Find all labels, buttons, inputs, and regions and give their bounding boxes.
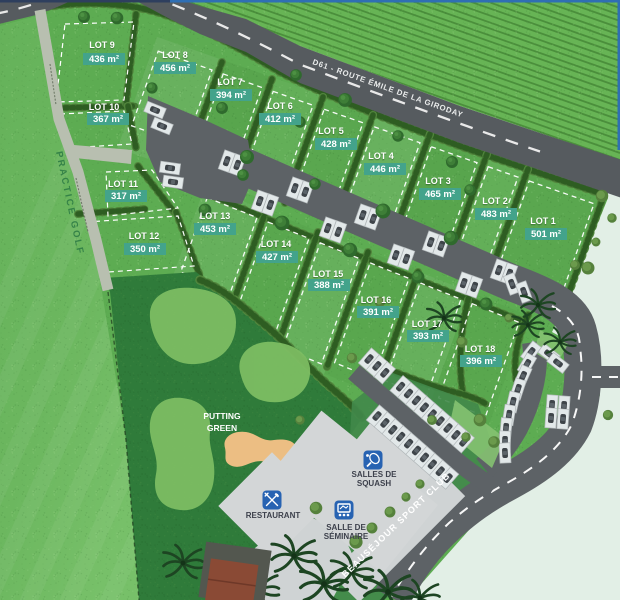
svg-text:SÉMINAIRE: SÉMINAIRE (324, 532, 369, 541)
svg-text:LOT 18: LOT 18 (465, 344, 496, 354)
svg-text:LOT 16: LOT 16 (361, 295, 392, 305)
svg-text:LOT 3: LOT 3 (425, 176, 451, 186)
svg-text:394 m²: 394 m² (216, 90, 246, 101)
svg-text:LOT 9: LOT 9 (89, 40, 115, 50)
svg-text:456 m²: 456 m² (160, 63, 190, 74)
svg-text:SALLE DE: SALLE DE (326, 523, 366, 532)
svg-text:465 m²: 465 m² (425, 189, 455, 200)
svg-text:388 m²: 388 m² (314, 280, 344, 291)
svg-text:317 m²: 317 m² (111, 191, 141, 202)
svg-text:GREEN: GREEN (207, 423, 237, 433)
svg-text:LOT 8: LOT 8 (162, 50, 188, 60)
svg-text:428 m²: 428 m² (321, 139, 351, 150)
svg-text:LOT 6: LOT 6 (267, 101, 293, 111)
svg-text:396 m²: 396 m² (466, 356, 496, 367)
svg-text:LOT 1: LOT 1 (530, 216, 556, 226)
svg-text:350 m²: 350 m² (130, 244, 160, 255)
svg-text:LOT 17: LOT 17 (412, 319, 443, 329)
svg-text:391 m²: 391 m² (363, 307, 393, 318)
svg-text:PUTTING: PUTTING (203, 411, 241, 421)
svg-text:RESTAURANT: RESTAURANT (246, 511, 301, 520)
svg-text:LOT 13: LOT 13 (200, 211, 231, 221)
svg-text:501 m²: 501 m² (531, 229, 561, 240)
svg-text:LOT 12: LOT 12 (129, 231, 160, 241)
svg-text:LOT 14: LOT 14 (261, 239, 292, 249)
svg-text:LOT 2: LOT 2 (482, 196, 508, 206)
svg-text:SQUASH: SQUASH (357, 479, 391, 488)
svg-text:412 m²: 412 m² (265, 114, 295, 125)
svg-text:SALLES DE: SALLES DE (352, 470, 398, 479)
svg-text:483 m²: 483 m² (481, 209, 511, 220)
svg-text:LOT 11: LOT 11 (108, 179, 138, 189)
svg-text:427 m²: 427 m² (262, 252, 292, 263)
svg-text:LOT 5: LOT 5 (318, 126, 344, 136)
svg-text:LOT 10: LOT 10 (89, 102, 120, 112)
svg-text:436 m²: 436 m² (89, 54, 119, 65)
svg-text:LOT 4: LOT 4 (368, 151, 394, 161)
svg-text:446 m²: 446 m² (370, 164, 400, 175)
svg-text:LOT 7: LOT 7 (217, 77, 243, 87)
svg-text:393 m²: 393 m² (413, 331, 443, 342)
svg-text:453 m²: 453 m² (200, 224, 230, 235)
svg-text:367 m²: 367 m² (93, 114, 123, 125)
svg-text:LOT 15: LOT 15 (313, 269, 344, 279)
